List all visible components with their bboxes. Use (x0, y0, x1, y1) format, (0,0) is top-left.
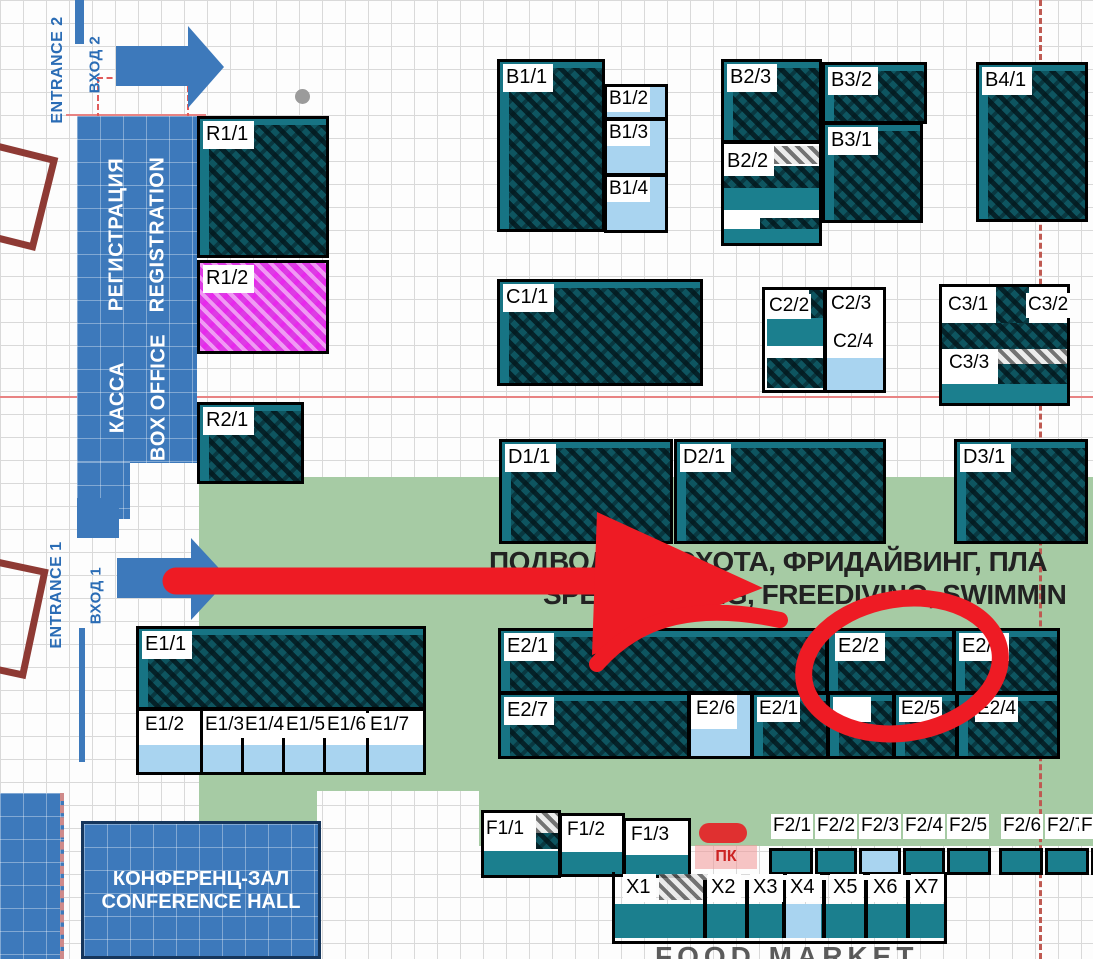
booth-label: B1/3 (607, 121, 650, 146)
booth-label: E2/2 (835, 633, 885, 661)
booth-e1-1: E1/1 (136, 626, 426, 710)
conference-hall-label-ru: КОНФЕРЕНЦ-ЗАЛ (84, 868, 318, 891)
booth-label: E2/1 (504, 633, 554, 661)
booth-e2-1-top: E2/1 (498, 628, 828, 694)
booth-section (942, 323, 1067, 349)
booth-b1-1: B1/1 (497, 59, 605, 232)
booth-label: B3/1 (828, 127, 878, 155)
booth-label: B1/1 (503, 64, 553, 92)
booth-section (615, 904, 944, 938)
zone-banner-en: SPEARFISHING, FREEDIVING, SWIMMIN (543, 579, 1066, 611)
pk-marker-pill (699, 823, 747, 843)
booth-f1-2: F1/2 (559, 813, 625, 877)
booth-label: E2/4 (975, 697, 1018, 722)
box-office-label-en: BOX OFFICE (148, 258, 171, 538)
booth-c3-group: C3/1 C3/2 C3/3 (939, 284, 1070, 406)
entrance1-label-ru: ВХОД 1 (88, 546, 105, 646)
booth-c2-2: C2/2 (762, 287, 826, 393)
partial-booth-outline (0, 553, 49, 679)
booth-divider (864, 880, 868, 938)
booth-label: E1/5 (284, 713, 327, 738)
booth-label: B2/2 (724, 148, 774, 176)
booth-label: D3/1 (960, 444, 1011, 472)
booth-label: C1/1 (503, 284, 554, 312)
booth-label: E2/1 (757, 697, 800, 722)
booth-section (562, 852, 622, 874)
booth-label: X1 (623, 874, 656, 902)
booth-label: R1/1 (203, 121, 254, 149)
entrance1-arrow (117, 558, 191, 598)
booth-r1-1: R1/1 (197, 116, 329, 258)
booth-label: F2/5 (947, 814, 989, 839)
wall-segment (79, 628, 85, 762)
booth-section (724, 229, 819, 243)
booth-section (767, 318, 823, 346)
booth-section (737, 695, 750, 729)
registration-bar (77, 116, 197, 463)
booth-label: C2/3 (829, 292, 873, 317)
booth-b4-1: B4/1 (976, 62, 1088, 222)
booth-label: C3/1 (946, 293, 990, 318)
booth-label: X2 (708, 874, 741, 902)
booth-cell (859, 848, 901, 875)
booth-label: E1/4 (243, 713, 286, 738)
booth-label: E1/3 (203, 713, 246, 738)
gray-dot (295, 89, 310, 104)
booth-label: E1/6 (325, 713, 368, 738)
booth-section (942, 384, 1067, 403)
booth-cell (999, 848, 1043, 875)
zone-banner-ru: ПОДВОДНАЯ ОХОТА, ФРИДАЙВИНГ, ПЛА (489, 546, 1047, 578)
entrance2-label-en: ENTRANCE 2 (49, 0, 67, 155)
booth-label: C2/2 (767, 294, 811, 319)
booth-r1-2: R1/2 (197, 260, 329, 354)
wall-segment (75, 0, 84, 44)
conference-hall: КОНФЕРЕНЦ-ЗАЛ CONFERENCE HALL (81, 821, 321, 959)
booth-divider (703, 880, 707, 938)
booth-label: E1/2 (143, 713, 186, 738)
booth-label: R1/2 (203, 265, 254, 293)
booth-label: C3/3 (947, 351, 991, 376)
booth-b1-2: B1/2 (604, 84, 668, 120)
booth-section (691, 729, 750, 756)
booth-e2-7: E2/7 (498, 692, 690, 759)
booth-label: E2/5 (899, 697, 942, 722)
booth-e1-row: E1/2 E1/3 E1/4 E1/5 E1/6 E1/7 (136, 708, 426, 775)
entrance2-label-ru: ВХОД 2 (87, 15, 104, 115)
booth-section (760, 218, 819, 229)
booth-section (536, 813, 558, 833)
booth-label: B2/3 (727, 64, 777, 92)
booth-cell (769, 848, 813, 875)
entrance1-arrow-head (191, 538, 229, 620)
booth-label: D1/1 (505, 444, 556, 472)
booth-section (724, 188, 819, 210)
booth-section (998, 349, 1067, 364)
booth-label: F1/1 (484, 817, 526, 842)
entrance2-arrow (116, 46, 188, 86)
booth-divider (822, 880, 826, 938)
booth-label: B1/4 (607, 177, 650, 202)
exhibition-floor-plan: ENTRANCE 2 ВХОД 2 РЕГИСТРАЦИЯ REGISTRATI… (0, 0, 1093, 959)
booth-b2-3: B2/3 (721, 59, 822, 143)
booth-label: F1/3 (629, 823, 671, 848)
entrance2-arrow-head (188, 26, 224, 108)
booth-e2-hidden (827, 692, 895, 759)
booth-label: E1/7 (368, 713, 411, 738)
wall-segment (77, 498, 119, 538)
booth-e2-6: E2/6 (688, 692, 753, 759)
booth-f1-1: F1/1 (481, 810, 561, 878)
booth-label: R2/1 (203, 407, 254, 435)
booth-section (785, 904, 821, 938)
box-office-label-ru: КАССА (107, 258, 130, 538)
booth-x-row: X1 X2 X3 X4 X5 X6 X7 (612, 872, 947, 944)
booth-c1-1: C1/1 (497, 279, 703, 386)
pk-marker: ПК (695, 845, 757, 869)
booth-label: B1/2 (607, 87, 650, 112)
booth-c2-3-c2-4: C2/3 C2/4 (824, 287, 886, 393)
booth-label: F2/6 (1001, 814, 1043, 839)
booth-cell (947, 848, 991, 875)
booth-e2-4: E2/4 (956, 692, 1060, 759)
booth-label: E2/7 (504, 697, 554, 725)
booth-f1-3: F1/3 (623, 818, 691, 878)
booth-section (659, 874, 707, 900)
booth-divider (906, 880, 910, 938)
booth-label: X4 (787, 874, 820, 902)
booth-label: C2/4 (831, 330, 875, 355)
booth-section (774, 146, 819, 164)
booth-label: X3 (750, 874, 783, 902)
booth-label: E2/6 (694, 697, 737, 722)
booth-label: F2/4 (903, 814, 945, 839)
booth-label: X5 (830, 874, 863, 902)
entrance1-label-en: ENTRANCE 1 (48, 510, 66, 680)
booth-label: F2/2 (815, 814, 857, 839)
booth-e2-2: E2/2 (826, 628, 955, 694)
booth-label: E1/1 (142, 631, 192, 659)
food-market-label: FOOD MARKET (655, 941, 918, 959)
booth-section (139, 745, 423, 772)
booth-d3-1: D3/1 (954, 439, 1088, 544)
side-hall-block (0, 793, 64, 959)
booth-section (484, 851, 558, 875)
booth-b2-2: B2/2 (721, 141, 822, 246)
booth-r2-1: R2/1 (197, 402, 304, 484)
booth-section (536, 833, 558, 849)
booth-e2-3: E2/3 (953, 628, 1060, 694)
booth-label: C3/2 (1026, 293, 1070, 318)
booth-d1-1: D1/1 (499, 439, 673, 544)
booth-section (827, 358, 883, 390)
booth-label: X7 (911, 874, 944, 902)
booth-b1-4: B1/4 (604, 174, 668, 233)
booth-cell (903, 848, 945, 875)
booth-label: E2/3 (959, 633, 1009, 661)
booth-label: B3/2 (828, 67, 878, 95)
booth-e2-1-bottom: E2/1 (751, 692, 829, 759)
booth-b3-2: B3/2 (822, 62, 927, 124)
booth-f2-row: F2/1 F2/2 F2/3 F2/4 F2/5 F2/6 F2/7 F2/8 (765, 812, 1093, 878)
booth-b3-1: B3/1 (822, 122, 923, 223)
booth-label: F2/3 (859, 814, 901, 839)
booth-divider (745, 880, 749, 938)
booth-d2-1: D2/1 (674, 439, 886, 544)
booth-section (998, 364, 1067, 384)
booth-cell (1045, 848, 1089, 875)
booth-section (767, 358, 823, 388)
booth-label (833, 697, 871, 722)
conference-hall-label-en: CONFERENCE HALL (84, 891, 318, 914)
booth-label: D2/1 (680, 444, 731, 472)
booth-label: B4/1 (982, 67, 1032, 95)
booth-label: F2/1 (771, 814, 813, 839)
booth-label: F2/8 (1079, 814, 1093, 839)
pk-label: ПК (715, 848, 736, 865)
booth-label: F1/2 (565, 818, 607, 843)
booth-cell (815, 848, 857, 875)
booth-label: X6 (870, 874, 903, 902)
booth-b1-3: B1/3 (604, 118, 668, 176)
booth-e2-5: E2/5 (893, 692, 958, 759)
